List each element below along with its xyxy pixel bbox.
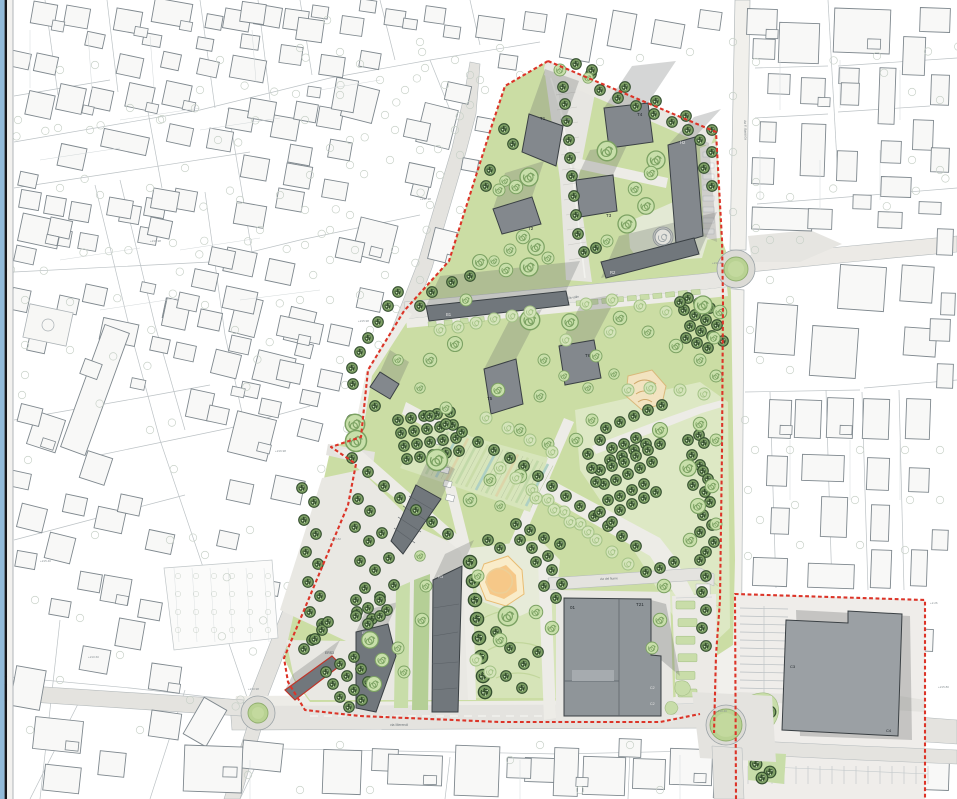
svg-text:R2: R2 bbox=[610, 270, 616, 275]
svg-text:+215.40: +215.40 bbox=[40, 559, 51, 563]
svg-text:C3: C3 bbox=[790, 664, 796, 669]
svg-text:+210.98: +210.98 bbox=[248, 687, 259, 691]
svg-text:C2: C2 bbox=[650, 702, 655, 706]
svg-text:C4: C4 bbox=[886, 728, 892, 733]
svg-text:T3: T3 bbox=[606, 213, 612, 218]
svg-text:T5: T5 bbox=[487, 396, 493, 401]
svg-text:via del fiume: via del fiume bbox=[600, 576, 618, 581]
svg-text:B1: B1 bbox=[446, 312, 452, 317]
svg-text:+217.50: +217.50 bbox=[560, 117, 571, 121]
svg-text:+216.98: +216.98 bbox=[275, 449, 286, 453]
svg-text:+213.82: +213.82 bbox=[330, 537, 341, 541]
svg-text:+218.98: +218.98 bbox=[150, 239, 161, 243]
svg-text:T4: T4 bbox=[637, 112, 643, 117]
svg-text:T2: T2 bbox=[528, 226, 534, 231]
svg-text:+2.26: +2.26 bbox=[930, 601, 938, 605]
svg-text:+210.60: +210.60 bbox=[88, 655, 99, 659]
svg-text:+215.98: +215.98 bbox=[358, 319, 369, 323]
svg-text:ERS3: ERS3 bbox=[325, 651, 334, 655]
svg-text:C2: C2 bbox=[650, 686, 655, 690]
svg-text:H2: H2 bbox=[680, 140, 686, 145]
svg-text:+215.80: +215.80 bbox=[938, 685, 949, 689]
svg-text:+210.40: +210.40 bbox=[716, 709, 727, 713]
svg-text:+211.40: +211.40 bbox=[712, 261, 723, 265]
svg-text:+217.98: +217.98 bbox=[420, 197, 431, 201]
svg-text:T1: T1 bbox=[540, 116, 546, 121]
svg-text:via F. Baracca: via F. Baracca bbox=[743, 120, 748, 140]
svg-text:T21: T21 bbox=[636, 602, 644, 607]
svg-text:01: 01 bbox=[570, 605, 576, 610]
svg-text:via Merendi: via Merendi bbox=[390, 723, 408, 727]
svg-text:R3: R3 bbox=[438, 574, 444, 579]
